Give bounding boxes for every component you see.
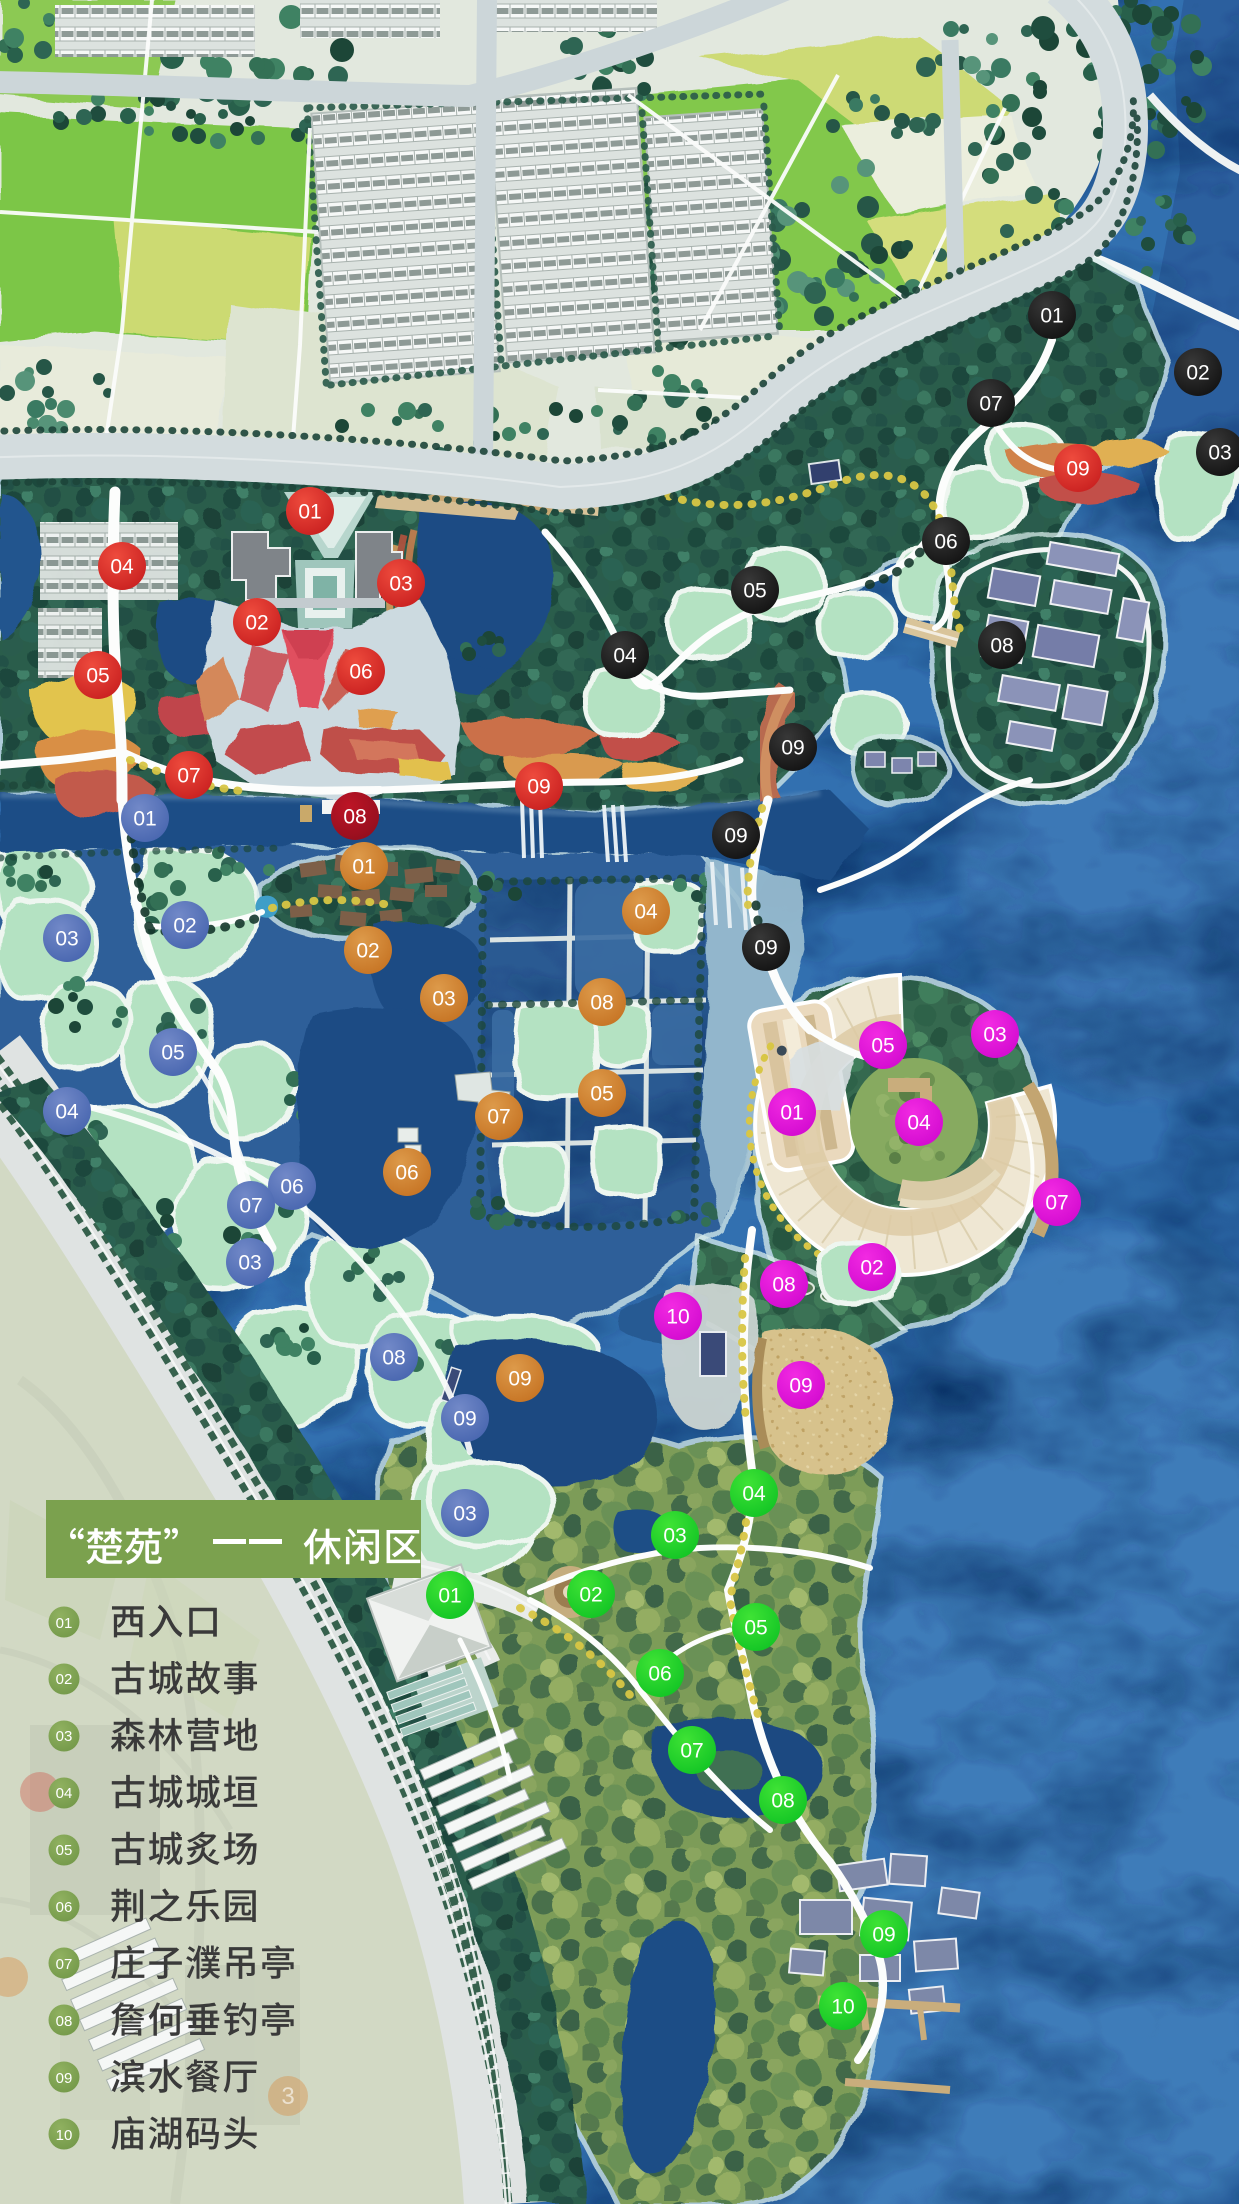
svg-text:04: 04: [634, 901, 658, 924]
svg-text:10: 10: [831, 1996, 854, 2019]
svg-text:01: 01: [438, 1585, 461, 1608]
svg-text:09: 09: [872, 1924, 895, 1947]
svg-text:07: 07: [177, 765, 200, 788]
svg-text:01: 01: [1040, 305, 1063, 328]
svg-text:06: 06: [934, 531, 957, 554]
svg-text:03: 03: [389, 573, 412, 596]
svg-text:04: 04: [56, 1785, 73, 1802]
svg-text:05: 05: [161, 1042, 184, 1065]
svg-text:01: 01: [780, 1102, 803, 1125]
svg-text:07: 07: [680, 1740, 703, 1763]
svg-text:06: 06: [648, 1663, 671, 1686]
svg-text:06: 06: [349, 661, 372, 684]
svg-text:10: 10: [666, 1306, 689, 1329]
svg-text:05: 05: [590, 1083, 613, 1106]
svg-text:09: 09: [754, 937, 777, 960]
svg-text:04: 04: [907, 1112, 931, 1135]
svg-text:04: 04: [55, 1101, 79, 1124]
svg-text:01: 01: [133, 808, 156, 831]
svg-text:05: 05: [744, 1617, 767, 1640]
svg-text:03: 03: [453, 1503, 476, 1526]
svg-text:02: 02: [1186, 362, 1209, 385]
svg-text:06: 06: [280, 1176, 303, 1199]
svg-text:02: 02: [579, 1584, 602, 1607]
svg-text:05: 05: [56, 1842, 73, 1859]
svg-text:09: 09: [453, 1408, 476, 1431]
svg-text:05: 05: [86, 665, 109, 688]
svg-text:09: 09: [1066, 458, 1089, 481]
svg-text:08: 08: [343, 806, 366, 829]
svg-text:10: 10: [56, 2127, 73, 2144]
svg-text:01: 01: [298, 501, 321, 524]
svg-text:06: 06: [395, 1162, 418, 1185]
svg-text:03: 03: [56, 1728, 73, 1745]
svg-text:07: 07: [487, 1106, 510, 1129]
svg-text:04: 04: [613, 645, 637, 668]
svg-text:03: 03: [55, 928, 78, 951]
svg-text:09: 09: [527, 776, 550, 799]
svg-text:07: 07: [979, 393, 1002, 416]
svg-text:08: 08: [990, 635, 1013, 658]
svg-text:03: 03: [238, 1252, 261, 1275]
svg-text:09: 09: [781, 737, 804, 760]
svg-text:08: 08: [56, 2013, 73, 2030]
svg-text:04: 04: [110, 556, 134, 579]
svg-text:07: 07: [239, 1195, 262, 1218]
svg-text:02: 02: [56, 1671, 73, 1688]
svg-text:05: 05: [743, 580, 766, 603]
svg-text:02: 02: [173, 915, 196, 938]
svg-text:02: 02: [356, 940, 379, 963]
svg-text:08: 08: [772, 1274, 795, 1297]
svg-text:04: 04: [742, 1483, 766, 1506]
svg-text:03: 03: [983, 1024, 1006, 1047]
svg-text:09: 09: [724, 825, 747, 848]
svg-text:09: 09: [508, 1368, 531, 1391]
svg-text:08: 08: [590, 992, 613, 1015]
svg-text:03: 03: [663, 1525, 686, 1548]
svg-text:01: 01: [352, 856, 375, 879]
svg-text:02: 02: [860, 1257, 883, 1280]
svg-text:03: 03: [432, 988, 455, 1011]
svg-text:3: 3: [281, 2083, 294, 2110]
svg-text:09: 09: [789, 1375, 812, 1398]
svg-text:08: 08: [382, 1347, 405, 1370]
svg-text:01: 01: [56, 1615, 73, 1632]
svg-text:03: 03: [1208, 442, 1231, 465]
svg-text:06: 06: [56, 1899, 73, 1916]
svg-text:07: 07: [1045, 1192, 1068, 1215]
svg-text:05: 05: [871, 1035, 894, 1058]
svg-text:08: 08: [771, 1790, 794, 1813]
svg-text:02: 02: [245, 612, 268, 635]
svg-text:07: 07: [56, 1956, 73, 1973]
svg-text:09: 09: [56, 2070, 73, 2087]
